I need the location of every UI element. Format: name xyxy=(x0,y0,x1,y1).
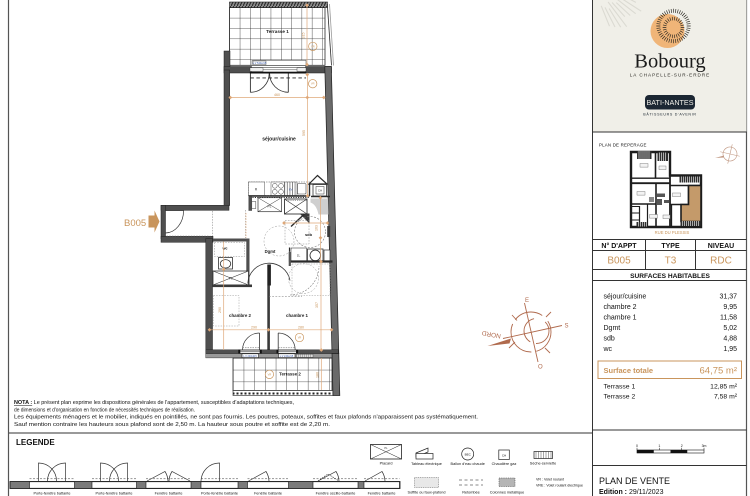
svg-text:B005: B005 xyxy=(607,256,631,267)
svg-text:2: 2 xyxy=(681,444,683,448)
svg-text:BÂTISSEURS D'AVENIR: BÂTISSEURS D'AVENIR xyxy=(643,113,696,117)
svg-text:O: O xyxy=(538,365,543,371)
svg-text:VR: VR xyxy=(268,372,272,376)
svg-text:Porte-fenêtre battante: Porte-fenêtre battante xyxy=(201,492,238,496)
svg-text:0: 0 xyxy=(636,444,638,448)
svg-text:BEC: BEC xyxy=(465,453,472,457)
svg-text:L.V 240x215: L.V 240x215 xyxy=(280,355,294,358)
svg-text:Chaudière gaz: Chaudière gaz xyxy=(492,462,517,466)
svg-text:VRE : Volet roulant électrique: VRE : Volet roulant électrique xyxy=(536,484,583,488)
svg-text:VR : Volet roulant: VR : Volet roulant xyxy=(536,478,564,482)
svg-text:280: 280 xyxy=(298,326,304,330)
svg-text:357: 357 xyxy=(315,302,319,308)
svg-text:290: 290 xyxy=(218,307,222,313)
svg-text:NIVEAU: NIVEAU xyxy=(708,243,734,250)
svg-text:sdb: sdb xyxy=(305,232,313,237)
svg-text:Dgmt: Dgmt xyxy=(604,325,621,332)
svg-text:VR: VR xyxy=(311,44,315,48)
svg-text:L.V 240x215: L.V 240x215 xyxy=(243,355,257,358)
svg-text:VR: VR xyxy=(311,82,315,86)
svg-text:TYPE: TYPE xyxy=(661,243,680,250)
svg-text:wc: wc xyxy=(603,346,613,353)
svg-text:T3: T3 xyxy=(665,256,677,267)
svg-text:Terrasse 1: Terrasse 1 xyxy=(604,384,636,391)
svg-text:Placard: Placard xyxy=(380,462,393,466)
svg-text:PLAN DE VENTE: PLAN DE VENTE xyxy=(599,476,670,486)
svg-text:1,95: 1,95 xyxy=(723,346,737,353)
svg-text:RUE DU PLESSIS: RUE DU PLESSIS xyxy=(655,230,690,235)
svg-text:NOTA : Le présent plan exprime: NOTA : Le présent plan exprime les dispo… xyxy=(14,400,294,406)
svg-text:5,02: 5,02 xyxy=(723,325,737,332)
svg-text:N° D'APPT: N° D'APPT xyxy=(601,242,637,250)
svg-text:Sèche-serviette: Sèche-serviette xyxy=(530,462,556,466)
svg-text:E: E xyxy=(525,298,529,304)
svg-text:Colonnes métallique: Colonnes métallique xyxy=(490,491,524,495)
svg-text:Fenêtre battante: Fenêtre battante xyxy=(368,492,396,496)
svg-text:Porte-fenêtre battante: Porte-fenêtre battante xyxy=(34,492,71,496)
svg-text:Porte-fenêtre battante: Porte-fenêtre battante xyxy=(96,492,133,496)
svg-text:L.V 540x215: L.V 540x215 xyxy=(253,62,267,65)
svg-text:PL: PL xyxy=(229,277,233,281)
svg-text:sdb: sdb xyxy=(604,336,615,343)
svg-text:PLAN DE REPERAGE: PLAN DE REPERAGE xyxy=(599,143,647,148)
svg-text:LEGENDE: LEGENDE xyxy=(16,438,55,447)
svg-text:1: 1 xyxy=(658,444,660,448)
svg-text:Les équipements ménagers et l: Les équipements ménagers et le mobilier,… xyxy=(14,415,478,421)
svg-text:BATI-NANTES: BATI-NANTES xyxy=(647,98,694,107)
svg-text:163: 163 xyxy=(315,225,319,231)
svg-text:180: 180 xyxy=(316,372,320,378)
svg-text:S: S xyxy=(565,324,569,330)
svg-text:64,75 m²: 64,75 m² xyxy=(700,366,738,377)
svg-text:Soffite ou faux-plafond: Soffite ou faux-plafond xyxy=(408,491,446,495)
svg-text:31,37: 31,37 xyxy=(719,294,737,301)
svg-text:Ballon d'eau chaude: Ballon d'eau chaude xyxy=(451,462,485,466)
svg-text:595: 595 xyxy=(302,130,306,136)
svg-text:290: 290 xyxy=(251,326,257,330)
svg-text:460: 460 xyxy=(274,93,280,97)
svg-text:12,85 m²: 12,85 m² xyxy=(710,384,738,391)
svg-text:9,95: 9,95 xyxy=(723,304,737,311)
svg-text:Retombée: Retombée xyxy=(462,491,480,495)
svg-text:Bobourg: Bobourg xyxy=(634,51,705,73)
svg-text:EV: EV xyxy=(289,188,293,192)
svg-text:LA CHAPELLE-SUR-ERDRE: LA CHAPELLE-SUR-ERDRE xyxy=(630,72,710,77)
svg-text:CH: CH xyxy=(318,189,322,193)
svg-text:SURFACES HABITABLES: SURFACES HABITABLES xyxy=(630,273,710,280)
svg-text:CH: CH xyxy=(502,454,506,458)
svg-text:Fenêtre oscillo-battante: Fenêtre oscillo-battante xyxy=(316,492,356,496)
svg-text:chambre 2: chambre 2 xyxy=(229,313,252,318)
svg-text:VR: VR xyxy=(298,336,302,340)
svg-text:Surface totale: Surface totale xyxy=(604,366,654,375)
svg-text:Fenêtre battante: Fenêtre battante xyxy=(155,492,183,496)
svg-text:séjour/cuisine: séjour/cuisine xyxy=(262,137,296,143)
svg-text:3m: 3m xyxy=(702,444,707,448)
svg-text:11,58: 11,58 xyxy=(720,315,737,322)
svg-text:4,88: 4,88 xyxy=(723,336,737,343)
svg-text:NORD: NORD xyxy=(481,329,501,339)
svg-text:séjour/cuisine: séjour/cuisine xyxy=(604,294,647,301)
svg-text:wc: wc xyxy=(221,247,227,251)
svg-text:Sauf mention contraire les hau: Sauf mention contraire les hauteurs sous… xyxy=(14,422,330,428)
svg-text:7,58 m²: 7,58 m² xyxy=(714,394,738,401)
svg-text:chambre 1: chambre 1 xyxy=(286,313,309,318)
svg-text:LL: LL xyxy=(297,254,301,258)
svg-text:PL: PL xyxy=(384,446,388,450)
svg-text:Terrasse 1: Terrasse 1 xyxy=(266,29,289,34)
svg-text:chambre 1: chambre 1 xyxy=(604,315,637,322)
svg-text:Tableau électrique: Tableau électrique xyxy=(411,462,442,466)
svg-text:de dimensions et d'organisatio: de dimensions et d'organisation en fonct… xyxy=(14,407,195,413)
svg-text:RDC: RDC xyxy=(710,256,732,267)
svg-text:PL: PL xyxy=(268,205,272,209)
svg-text:B005: B005 xyxy=(124,218,146,229)
svg-text:Edition : 29/11/2023: Edition : 29/11/2023 xyxy=(599,489,664,496)
svg-text:chambre 2: chambre 2 xyxy=(604,304,637,311)
svg-text:Fenêtre battante: Fenêtre battante xyxy=(254,492,282,496)
svg-text:Terrasse 2: Terrasse 2 xyxy=(604,394,636,401)
svg-text:315: 315 xyxy=(302,33,306,39)
svg-text:Terrasse 2: Terrasse 2 xyxy=(279,372,301,377)
